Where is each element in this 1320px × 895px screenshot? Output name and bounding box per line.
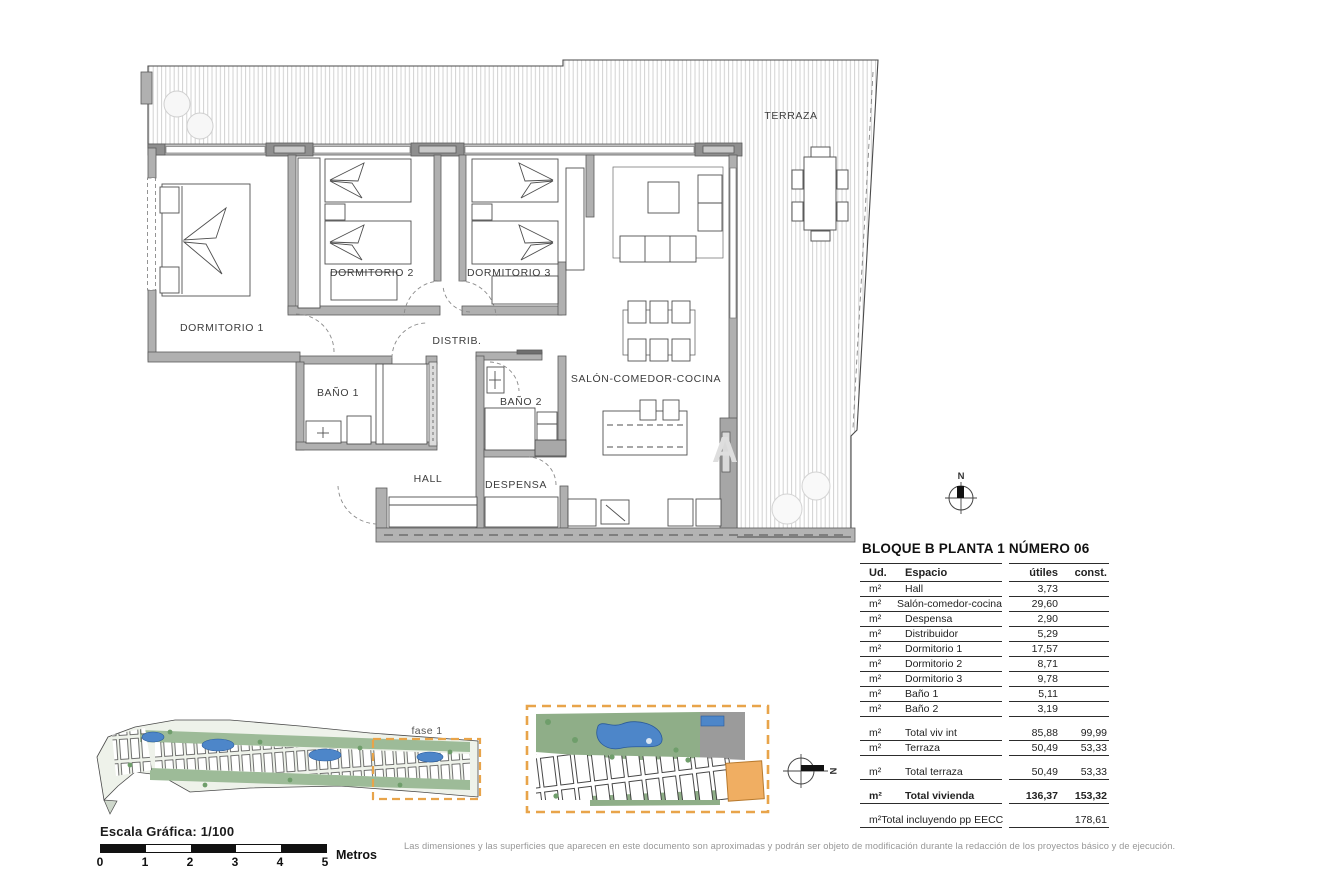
col-ud: Ud. <box>860 567 905 579</box>
wardrobe <box>298 158 320 308</box>
table-section: m²Total vivienda136,37153,32 <box>860 789 1122 804</box>
plant-icon <box>802 472 830 500</box>
cell-utiles: 5,29 <box>1009 628 1062 640</box>
table-section: m²Total incluyendo pp EECC178,61 <box>860 813 1122 828</box>
room-label-dormitorio3: DORMITORIO 3 <box>467 267 551 279</box>
table-row: m²Total terraza50,4953,33 <box>860 765 1122 780</box>
dresser <box>492 276 558 304</box>
cell-utiles: 5,11 <box>1009 688 1062 700</box>
disclaimer-text: Las dimensiones y las superficies que ap… <box>404 841 1318 851</box>
cell-espacio: Total viv int <box>905 727 1002 739</box>
table-row: m²Dormitorio 39,78 <box>860 672 1122 687</box>
table-row: m²Dormitorio 28,71 <box>860 657 1122 672</box>
cell-const: 99,99 <box>1062 727 1109 739</box>
cell-espacio: Total vivienda <box>905 790 1002 802</box>
cell-utiles: 3,19 <box>1009 703 1062 715</box>
cell-utiles: 29,60 <box>1009 598 1062 610</box>
bed-double <box>160 184 250 296</box>
cell-utiles: 2,90 <box>1009 613 1062 625</box>
sofa-set <box>613 167 723 262</box>
cell-ud: m² <box>860 613 905 625</box>
scale-unit: Metros <box>336 848 377 862</box>
table-header-row: Ud. Espacio útiles const. <box>860 563 1122 582</box>
cell-espacio: Total terraza <box>905 766 1002 778</box>
cell-ud: m² <box>860 673 905 685</box>
cell-const: 153,32 <box>1062 790 1109 802</box>
cell-const: 178,61 <box>1062 814 1109 826</box>
hall-closet <box>389 497 558 527</box>
cell-const <box>1062 643 1109 655</box>
plan-sheet: TERRAZA <box>0 0 1320 895</box>
cell-espacio: Baño 1 <box>905 688 1002 700</box>
site-north-compass-icon: N <box>783 754 838 788</box>
scale-title: Escala Gráfica: 1/100 <box>100 824 400 839</box>
cell-espacio: Dormitorio 2 <box>905 658 1002 670</box>
cell-ud: m² <box>860 658 905 670</box>
table-section: m²Hall3,73m²Salón-comedor-cocina29,60m²D… <box>860 582 1122 717</box>
table-title: BLOQUE B PLANTA 1 NÚMERO 06 <box>862 541 1122 556</box>
kitchen-counter <box>568 499 721 526</box>
fase1-label: fase 1 <box>411 725 442 737</box>
table-row: m²Total viv int85,8899,99 <box>860 726 1122 741</box>
table-row: m²Total vivienda136,37153,32 <box>860 789 1122 804</box>
scale-tick: 5 <box>322 855 329 869</box>
table-row: m²Despensa2,90 <box>860 612 1122 627</box>
cell-utiles: 9,78 <box>1009 673 1062 685</box>
cell-ud: m² <box>860 598 897 610</box>
cell-ud: m² <box>860 643 905 655</box>
site-north-label: N <box>827 768 838 775</box>
bath1-fixtures <box>306 364 427 444</box>
cell-ud: m² <box>860 742 905 754</box>
kitchen-island <box>603 400 687 455</box>
cell-utiles <box>1009 814 1062 826</box>
room-label-bano1: BAÑO 1 <box>317 386 359 399</box>
cell-const <box>1062 688 1109 700</box>
beds-dorm3 <box>472 159 584 304</box>
scale-ticks: 0 1 2 3 4 5 <box>100 855 325 869</box>
room-label-bano2: BAÑO 2 <box>500 395 542 408</box>
table-section: m²Total viv int85,8899,99m²Terraza50,495… <box>860 726 1122 756</box>
dining-set <box>623 301 695 361</box>
table-section: m²Total terraza50,4953,33 <box>860 765 1122 780</box>
cell-utiles: 85,88 <box>1009 727 1062 739</box>
wardrobe <box>566 168 584 270</box>
table-row: m²Baño 23,19 <box>860 702 1122 717</box>
table-row: m²Terraza50,4953,33 <box>860 741 1122 756</box>
cell-ud: m² <box>860 790 905 802</box>
room-label-dormitorio2: DORMITORIO 2 <box>330 267 414 279</box>
shower <box>376 364 427 444</box>
cell-ud: m² <box>860 583 905 595</box>
sink <box>306 421 341 443</box>
masterplan-minimap: fase 1 <box>97 720 480 814</box>
cell-espacio: Terraza <box>905 742 1002 754</box>
plant-icon <box>187 113 213 139</box>
room-label-terraza: TERRAZA <box>764 110 817 122</box>
areas-table: BLOQUE B PLANTA 1 NÚMERO 06 Ud. Espacio … <box>860 541 1122 828</box>
table-row: m²Hall3,73 <box>860 582 1122 597</box>
room-label-despensa: DESPENSA <box>485 479 547 491</box>
north-compass-icon: N <box>945 471 977 514</box>
table-row: m²Distribuidor5,29 <box>860 627 1122 642</box>
highlighted-building <box>726 761 765 801</box>
cell-espacio: Salón-comedor-cocina <box>897 598 1002 610</box>
col-const: const. <box>1062 567 1109 579</box>
cell-utiles: 136,37 <box>1009 790 1062 802</box>
watermark-letter: A <box>712 429 738 470</box>
graphic-scale: Escala Gráfica: 1/100 0 1 2 3 4 5 Metros <box>100 824 400 869</box>
north-label: N <box>958 471 965 482</box>
room-label-salon: SALÓN-COMEDOR-COCINA <box>571 372 721 385</box>
shaft <box>535 440 566 456</box>
cell-espacio: Baño 2 <box>905 703 1002 715</box>
scale-bar <box>100 844 327 853</box>
cell-espacio: Total incluyendo pp EECC <box>881 814 1003 826</box>
cell-const <box>1062 583 1109 595</box>
scale-tick: 1 <box>142 855 149 869</box>
cell-const <box>1062 598 1109 610</box>
table-row: m²Dormitorio 117,57 <box>860 642 1122 657</box>
shower <box>485 408 535 450</box>
table-body: m²Hall3,73m²Salón-comedor-cocina29,60m²D… <box>860 582 1122 828</box>
cell-espacio: Distribuidor <box>905 628 1002 640</box>
pool-small <box>701 716 724 726</box>
cell-espacio: Despensa <box>905 613 1002 625</box>
room-label-distrib: DISTRIB. <box>432 335 481 347</box>
cell-utiles: 8,71 <box>1009 658 1062 670</box>
cell-utiles: 3,73 <box>1009 583 1062 595</box>
scale-tick: 3 <box>232 855 239 869</box>
cell-utiles: 17,57 <box>1009 643 1062 655</box>
cell-espacio: Hall <box>905 583 1002 595</box>
cell-ud: m² <box>860 703 905 715</box>
cell-ud: m² <box>860 814 881 826</box>
table-row: m²Total incluyendo pp EECC178,61 <box>860 813 1122 828</box>
cell-const <box>1062 658 1109 670</box>
cell-const <box>1062 703 1109 715</box>
table-row: m²Baño 15,11 <box>860 687 1122 702</box>
bath2-fixtures <box>485 367 566 456</box>
scale-tick: 0 <box>97 855 104 869</box>
cell-const <box>1062 673 1109 685</box>
cell-espacio: Dormitorio 3 <box>905 673 1002 685</box>
scale-tick: 2 <box>187 855 194 869</box>
toilet <box>347 416 371 444</box>
cell-const <box>1062 613 1109 625</box>
col-espacio: Espacio <box>905 567 1002 579</box>
cell-ud: m² <box>860 766 905 778</box>
plant-icon <box>164 91 190 117</box>
fase1-detail-map <box>527 706 768 812</box>
cell-const: 53,33 <box>1062 742 1109 754</box>
cell-utiles: 50,49 <box>1009 766 1062 778</box>
cell-const <box>1062 628 1109 640</box>
cell-ud: m² <box>860 688 905 700</box>
pool <box>597 722 662 749</box>
cell-espacio: Dormitorio 1 <box>905 643 1002 655</box>
cell-ud: m² <box>860 628 905 640</box>
floor-plan-canvas: TERRAZA <box>0 0 1320 895</box>
room-label-dormitorio1: DORMITORIO 1 <box>180 322 264 334</box>
table-row: m²Salón-comedor-cocina29,60 <box>860 597 1122 612</box>
scale-tick: 4 <box>277 855 284 869</box>
plant-icon <box>772 494 802 524</box>
cell-utiles: 50,49 <box>1009 742 1062 754</box>
col-utiles: útiles <box>1009 567 1062 579</box>
cell-const: 53,33 <box>1062 766 1109 778</box>
cell-ud: m² <box>860 727 905 739</box>
room-label-hall: HALL <box>414 473 443 485</box>
